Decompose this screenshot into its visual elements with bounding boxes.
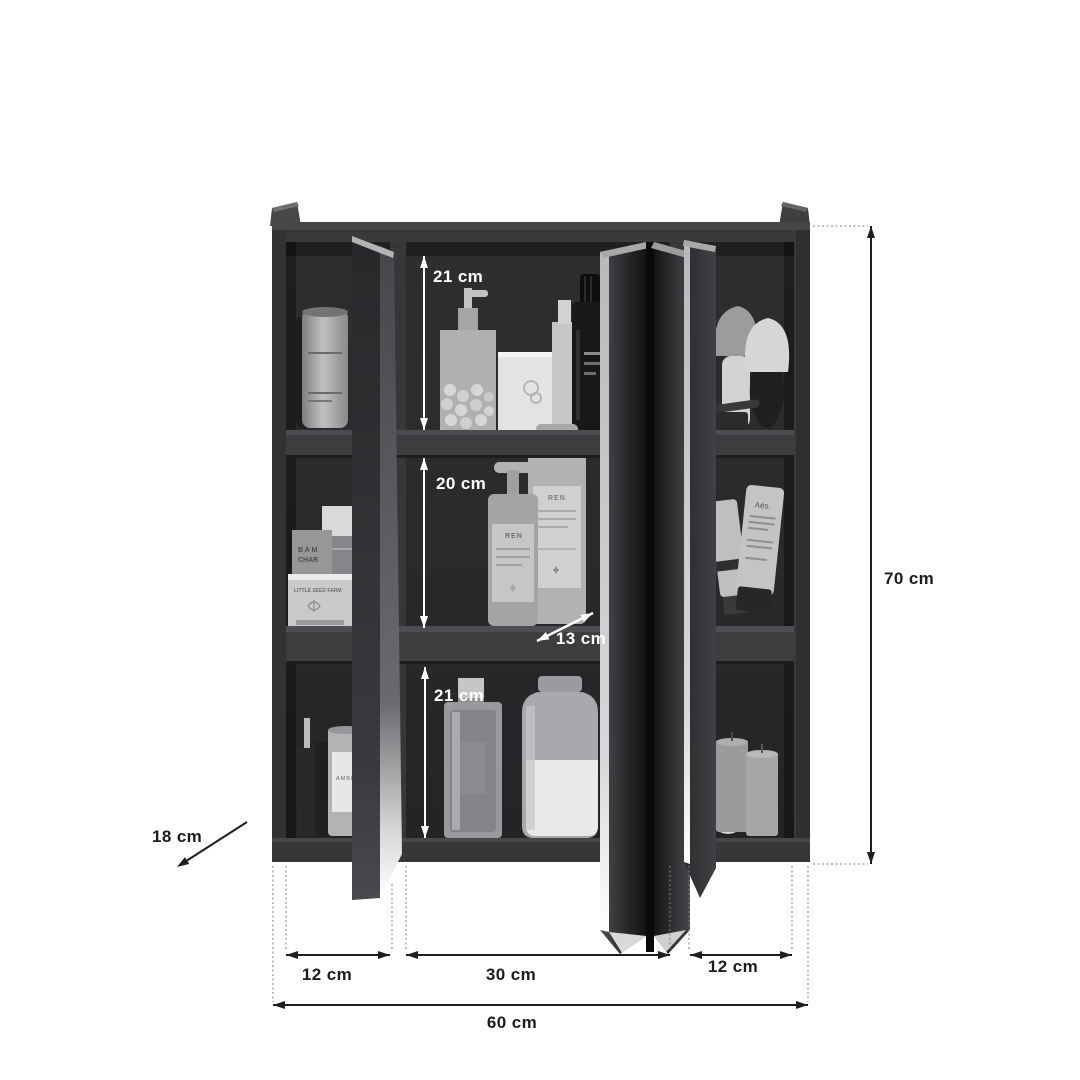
left-door-open — [352, 236, 402, 900]
dim-label-inner-middle: 20 cm — [436, 474, 486, 493]
middle-door-left-edge-highlight — [600, 250, 609, 932]
cabinet-top-band — [272, 222, 810, 230]
spray-bottle-label-line — [308, 352, 342, 354]
spray-bottle-label-line — [308, 400, 332, 402]
glass-jar — [522, 676, 598, 838]
left-door-face — [352, 236, 380, 900]
dimension-depth: 18 cm — [152, 822, 247, 867]
spray-bottle-label-line — [308, 392, 342, 394]
cabinet-right-wall — [796, 230, 810, 862]
seed-farm-box: LITTLE SEED FARM — [288, 574, 352, 632]
dim-label-inner-top: 21 cm — [433, 267, 483, 286]
right-door-edge-highlight — [684, 240, 690, 864]
mascara-wand — [304, 718, 310, 750]
shelf-left-top-products — [296, 307, 348, 428]
dim-label-total-width: 60 cm — [487, 1013, 537, 1032]
dimension-total-height: 70 cm — [867, 226, 934, 864]
pillar-candle-right — [746, 744, 778, 836]
cabinet-diagram-canvas: B A M CHAR LITTLE SEED FARM AMBRE — [0, 0, 1080, 1080]
dimension-total-width: 60 cm — [273, 1001, 808, 1032]
dim-label-middle-width: 30 cm — [486, 965, 536, 984]
dim-label-depth: 18 cm — [152, 827, 202, 846]
dimension-right-section-width: 12 cm — [690, 951, 792, 976]
middle-door-seam — [646, 242, 654, 952]
ren-front-text: REN — [505, 533, 523, 540]
charcoal-box-text-2: CHAR — [298, 557, 318, 564]
cabinet: B A M CHAR LITTLE SEED FARM AMBRE — [270, 202, 810, 954]
charcoal-box-text-1: B A M — [298, 547, 317, 554]
spray-bottle-body — [302, 310, 348, 428]
seed-farm-box-text: LITTLE SEED FARM — [294, 588, 342, 594]
dim-label-total-height: 70 cm — [884, 569, 934, 588]
small-jar — [718, 412, 748, 430]
aesop-text: Aēs. — [754, 500, 771, 511]
dim-label-inner-bottom: 21 cm — [434, 686, 484, 705]
dim-label-left-width: 12 cm — [302, 965, 352, 984]
interior-shadow-right — [784, 242, 794, 840]
jar-salt-fill — [526, 760, 598, 836]
dim-label-shelf-depth: 13 cm — [556, 629, 606, 648]
right-door-open — [683, 240, 716, 898]
pillar-candle-left — [716, 732, 748, 832]
middle-door-left-open — [600, 242, 649, 954]
ren-back-text: REN — [548, 495, 566, 502]
dim-label-right-width: 12 cm — [708, 957, 758, 976]
dimension-left-section-width: 12 cm — [286, 951, 390, 984]
dimension-middle-section-width: 30 cm — [406, 951, 670, 984]
product-dimension-diagram: B A M CHAR LITTLE SEED FARM AMBRE — [0, 0, 1080, 1080]
spray-bottle-top — [302, 307, 348, 317]
cabinet-left-wall — [272, 230, 286, 862]
